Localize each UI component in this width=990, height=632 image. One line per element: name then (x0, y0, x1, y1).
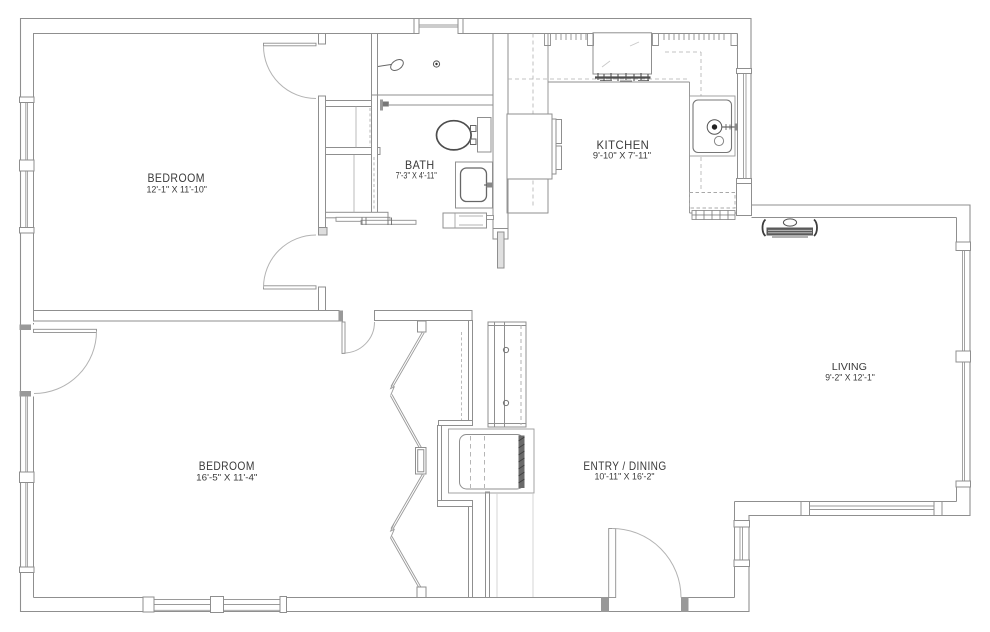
svg-text:7'-3" X 4'-11": 7'-3" X 4'-11" (396, 171, 437, 182)
svg-text:9'-2" X 12'-1": 9'-2" X 12'-1" (825, 373, 875, 383)
svg-text:BEDROOM: BEDROOM (147, 171, 205, 185)
svg-text:BEDROOM: BEDROOM (199, 459, 255, 473)
svg-text:16'-5" X 11'-4": 16'-5" X 11'-4" (196, 473, 257, 484)
svg-text:10'-11" X 16'-2": 10'-11" X 16'-2" (594, 472, 654, 483)
svg-text:9'-10" X 7'-11": 9'-10" X 7'-11" (593, 151, 651, 162)
svg-text:12'-1" X 11'-10": 12'-1" X 11'-10" (146, 185, 207, 196)
svg-text:LIVING: LIVING (832, 361, 867, 373)
